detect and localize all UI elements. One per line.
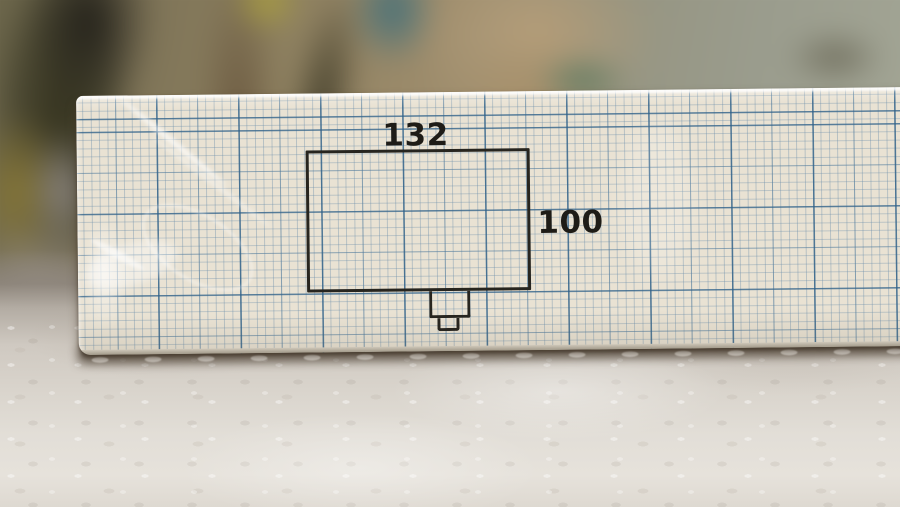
diagram-connector-tab-outer bbox=[429, 291, 470, 318]
photo-scene: 132 100 bbox=[0, 0, 900, 507]
diagram-rectangle-outline bbox=[306, 148, 532, 292]
diagram-connector-tab-inner bbox=[437, 318, 459, 331]
width-dimension-label: 132 bbox=[382, 120, 444, 152]
graph-paper-box: 132 100 bbox=[76, 87, 900, 355]
background-right-smudge bbox=[785, 30, 885, 85]
plastic-wrap-sheen bbox=[621, 124, 693, 275]
plastic-wrap-streak bbox=[120, 98, 228, 188]
height-dimension-label: 100 bbox=[537, 207, 604, 239]
